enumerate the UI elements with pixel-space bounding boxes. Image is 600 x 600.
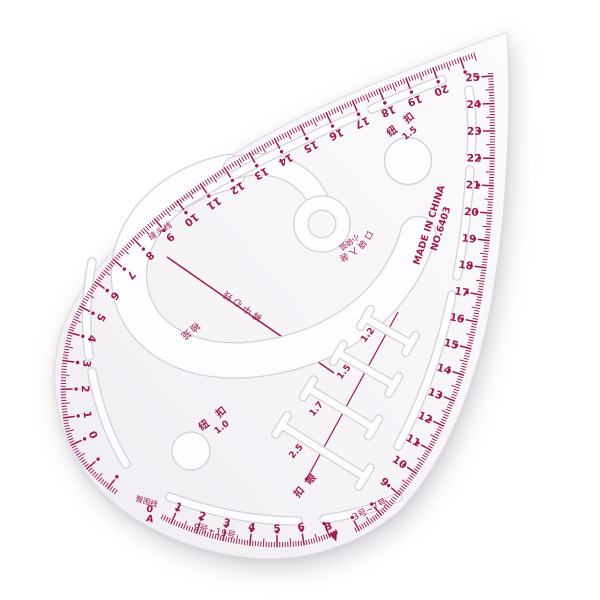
tick-dot <box>91 312 94 315</box>
tick-dot <box>207 194 210 197</box>
tick <box>62 409 67 410</box>
tick-dot <box>370 502 373 505</box>
tick <box>62 366 67 367</box>
tick-dot <box>162 229 165 232</box>
tick-dot <box>351 516 354 519</box>
tick-dot <box>305 137 308 140</box>
tick <box>63 414 68 415</box>
tick <box>482 265 487 266</box>
tick-dot <box>76 361 79 364</box>
tick <box>485 235 490 236</box>
tick <box>484 243 489 244</box>
tick <box>485 237 490 238</box>
scale-number: 24 <box>466 99 481 111</box>
scale-number: 2 <box>79 385 91 392</box>
tick <box>62 363 67 364</box>
tick-dot <box>74 387 77 390</box>
tick-dot <box>383 101 386 104</box>
scale-number: 21 <box>465 179 480 192</box>
tick <box>301 541 302 546</box>
scale-number: 5 <box>273 523 280 535</box>
tick-dot <box>322 522 325 525</box>
tick-dot <box>115 475 118 478</box>
tick-dot <box>255 164 258 167</box>
scale-number: 20 <box>464 206 479 219</box>
button-hole-large <box>385 138 432 185</box>
scale-number: 4 <box>247 521 256 534</box>
scale-number: 18 <box>458 259 474 273</box>
tick-dot <box>142 247 145 250</box>
scale-number: 23 <box>467 126 482 138</box>
tick-dot <box>123 267 126 270</box>
tick <box>483 251 488 252</box>
tick-dot <box>387 484 390 487</box>
tick <box>247 540 248 545</box>
tick <box>485 199 493 200</box>
scale-number: 22 <box>467 153 482 165</box>
tick-dot <box>357 113 360 116</box>
tick-dot <box>184 211 187 214</box>
tick-dot <box>280 150 283 153</box>
tick-dot <box>410 90 413 93</box>
tick <box>484 246 489 247</box>
tick <box>482 262 487 263</box>
tick <box>482 185 494 186</box>
tick <box>480 212 492 213</box>
tick <box>61 403 69 404</box>
tick <box>252 541 253 546</box>
tick <box>483 256 488 257</box>
scale-number: 17 <box>454 285 470 299</box>
sewing-curve-ruler-photo: 1.2 1.5 1.7 2.5 纽 扣 1.5 纽 扣 1.0 扣 眼 缝头线 … <box>0 0 600 600</box>
tick-dot <box>231 179 234 182</box>
tick <box>484 248 489 249</box>
tick <box>290 538 291 546</box>
scale-number: 19 <box>461 232 477 245</box>
tick <box>481 76 493 77</box>
tick-dot <box>331 124 334 127</box>
button-hole-small <box>172 432 210 470</box>
tick-dot <box>81 335 84 338</box>
scale-number: 3 <box>80 359 93 368</box>
tick-dot <box>76 414 79 417</box>
tick <box>482 259 487 260</box>
tick-dot <box>106 289 109 292</box>
tick-dot <box>83 437 86 440</box>
tick-dot <box>436 80 439 83</box>
tick <box>298 541 299 546</box>
tick <box>62 412 67 413</box>
tick-dot <box>96 457 99 460</box>
scale-number: 25 <box>465 72 480 85</box>
